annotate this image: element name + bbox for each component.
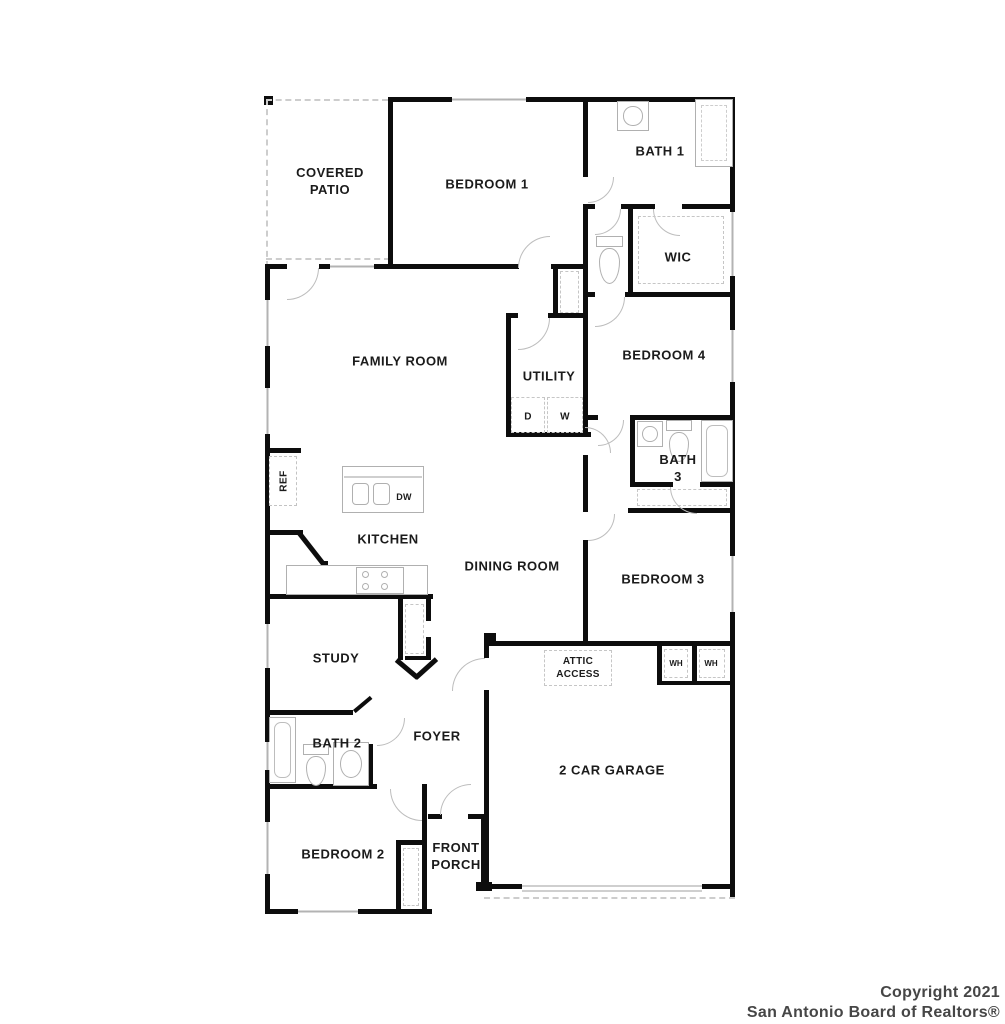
burner-icon (362, 583, 369, 590)
patio-dashed-edge-top (266, 99, 388, 101)
window (265, 388, 270, 434)
wall-segment (265, 264, 287, 269)
wall-segment (414, 657, 438, 679)
room-label-kitchen: KITCHEN (357, 532, 418, 549)
sink-basin-icon (373, 483, 390, 505)
sink-icon (637, 421, 663, 447)
room-label-garage: 2 CAR GARAGE (559, 763, 665, 780)
door-arc (518, 236, 550, 268)
door-arc (452, 658, 485, 691)
water-heater-label: WH (704, 659, 717, 669)
foyer-closet-shelf (405, 604, 424, 654)
copyright-line1: Copyright 2021 (747, 983, 1000, 1003)
room-label-foyer: FOYER (413, 729, 460, 746)
wall-segment (388, 97, 735, 102)
window (452, 97, 526, 102)
door-arc (595, 209, 621, 235)
driveway-dashed-edge (484, 897, 735, 899)
door-arc (588, 514, 615, 541)
wall-segment (692, 646, 697, 684)
garage-door (522, 885, 702, 887)
door-arc (595, 297, 625, 327)
room-label-utility: UTILITY (523, 369, 576, 386)
bedroom2-closet-shelf (403, 848, 419, 906)
wall-segment (476, 882, 492, 891)
wall-segment (630, 415, 635, 487)
wall-segment (583, 204, 588, 294)
wall-segment (583, 455, 588, 512)
wall-segment (265, 264, 270, 914)
room-label-covered-patio: COVERED PATIO (296, 165, 364, 199)
bathtub-icon (701, 420, 733, 482)
window (730, 212, 735, 276)
door-arc (287, 268, 319, 300)
wall-segment (700, 482, 735, 487)
garage-door (522, 890, 702, 892)
window (265, 742, 270, 770)
room-label-bedroom3: BEDROOM 3 (621, 572, 704, 589)
window (730, 556, 735, 612)
wall-segment (265, 448, 301, 453)
room-label-bedroom1: BEDROOM 1 (445, 177, 528, 194)
room-label-family-room: FAMILY ROOM (352, 354, 448, 371)
dishwasher-label: DW (396, 492, 411, 504)
window (730, 330, 735, 382)
shower-icon (695, 99, 733, 167)
door-arc (440, 784, 471, 815)
wall-segment (628, 209, 633, 294)
attic-access-label: ATTIC ACCESS (556, 655, 599, 681)
water-heater-label: WH (669, 659, 682, 669)
burner-icon (362, 571, 369, 578)
room-label-study: STUDY (313, 651, 360, 668)
wall-segment (422, 784, 427, 912)
wall-segment (265, 710, 353, 715)
wall-segment (484, 641, 735, 646)
patio-dashed-edge-left (266, 99, 268, 267)
door-arc (518, 318, 550, 350)
wall-segment (296, 530, 326, 566)
wall-segment (396, 840, 401, 912)
floor-plan: COVERED PATIO BEDROOM 1 BATH 1 WIC FAMIL… (0, 0, 1005, 1024)
window (265, 300, 270, 346)
door-arc (588, 177, 614, 203)
wall-segment (657, 681, 697, 685)
wall-segment (391, 264, 519, 269)
wall-segment (583, 540, 588, 644)
wall-segment (583, 97, 588, 177)
wall-segment (553, 266, 558, 316)
window (298, 909, 358, 914)
room-label-bath2: BATH 2 (313, 736, 362, 753)
sink-icon (617, 101, 649, 131)
wall-segment (426, 599, 431, 621)
room-label-front-porch: FRONT PORCH (431, 840, 480, 874)
wall-segment (405, 656, 427, 660)
wall-segment (657, 646, 662, 684)
wall-segment (583, 415, 598, 420)
refrigerator-label: REF (278, 470, 291, 492)
copyright-line2: San Antonio Board of Realtors® (747, 1003, 1000, 1023)
wall-segment (702, 884, 735, 889)
bathtub-icon (269, 717, 296, 783)
wall-segment (484, 646, 489, 658)
wall-segment (682, 204, 735, 209)
window (265, 822, 270, 874)
island-counter-edge (344, 476, 422, 478)
door-leaf (353, 696, 372, 713)
window (330, 264, 374, 269)
burner-icon (381, 583, 388, 590)
room-label-bedroom2: BEDROOM 2 (301, 847, 384, 864)
room-label-bedroom4: BEDROOM 4 (622, 348, 705, 365)
wall-segment (625, 292, 735, 297)
washer-label: W (560, 411, 570, 424)
patio-dashed-edge-bottom (266, 258, 390, 260)
door-arc (390, 789, 422, 821)
door-arc (598, 420, 624, 446)
dryer-label: D (524, 411, 532, 424)
window (265, 624, 270, 668)
toilet-icon (596, 236, 623, 284)
wall-segment (621, 204, 655, 209)
room-label-bath3: BATH 3 (659, 452, 696, 486)
sink-basin-icon (352, 483, 369, 505)
wall-segment (398, 599, 403, 660)
room-label-dining-room: DINING ROOM (464, 559, 559, 576)
linen-closet-shelf (560, 271, 579, 313)
room-label-wic: WIC (665, 250, 692, 267)
burner-icon (381, 571, 388, 578)
door-arc (377, 718, 405, 746)
wall-segment (388, 97, 393, 269)
copyright-watermark: Copyright 2021 San Antonio Board of Real… (747, 983, 1000, 1023)
room-label-bath1: BATH 1 (636, 144, 685, 161)
wall-segment (481, 814, 486, 886)
wall-segment (692, 681, 735, 685)
